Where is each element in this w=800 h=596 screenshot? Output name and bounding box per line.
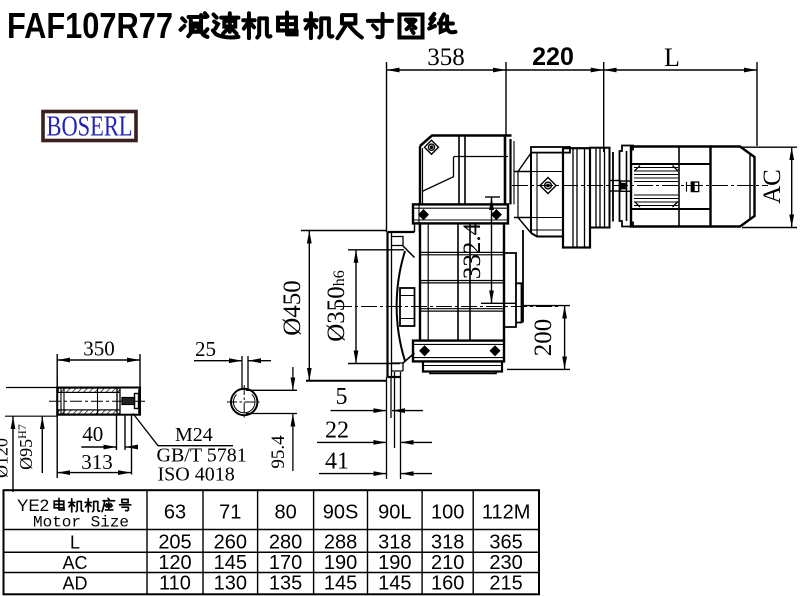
svg-text:63: 63 [164, 502, 186, 524]
svg-text:Ø450: Ø450 [279, 280, 306, 336]
svg-text:BOSERL: BOSERL [47, 111, 133, 143]
svg-text:41: 41 [325, 449, 349, 475]
svg-text:22: 22 [325, 418, 349, 444]
svg-text:358: 358 [427, 44, 465, 71]
svg-text:365: 365 [489, 532, 522, 554]
svg-text:130: 130 [214, 573, 247, 595]
svg-text:40: 40 [82, 422, 103, 446]
svg-text:318: 318 [378, 532, 411, 554]
svg-text:100: 100 [431, 502, 464, 524]
svg-text:M24: M24 [175, 424, 213, 446]
svg-text:Ø120: Ø120 [0, 438, 12, 478]
svg-text:145: 145 [324, 573, 357, 595]
svg-text:ISO 4018: ISO 4018 [158, 464, 235, 486]
svg-text:L: L [70, 533, 80, 553]
svg-text:120: 120 [158, 552, 191, 574]
svg-text:205: 205 [158, 532, 191, 554]
svg-text:145: 145 [214, 552, 247, 574]
svg-text:L: L [664, 43, 680, 72]
svg-text:190: 190 [378, 552, 411, 574]
svg-text:90S: 90S [323, 502, 359, 524]
svg-text:215: 215 [489, 573, 522, 595]
svg-text:200: 200 [530, 319, 557, 357]
svg-text:AC: AC [759, 169, 786, 204]
svg-text:280: 280 [269, 532, 302, 554]
svg-text:112M: 112M [482, 502, 531, 524]
svg-text:313: 313 [81, 450, 113, 474]
svg-text:90L: 90L [378, 502, 411, 524]
svg-text:25: 25 [195, 337, 216, 361]
svg-text:230: 230 [489, 552, 522, 574]
svg-text:145: 145 [378, 573, 411, 595]
svg-text:260: 260 [214, 532, 247, 554]
svg-text:5: 5 [336, 384, 348, 410]
svg-text:220: 220 [532, 43, 574, 71]
svg-text:110: 110 [159, 573, 191, 595]
svg-text:YE2: YE2 [17, 496, 49, 515]
svg-text:95.4: 95.4 [268, 435, 289, 469]
svg-text:FAF107R77: FAF107R77 [7, 5, 173, 46]
svg-text:190: 190 [324, 552, 357, 574]
svg-text:318: 318 [431, 532, 464, 554]
svg-text:71: 71 [219, 502, 241, 524]
svg-text:Motor Size: Motor Size [33, 514, 129, 532]
svg-text:135: 135 [269, 573, 302, 595]
svg-text:350: 350 [83, 337, 115, 361]
svg-text:80: 80 [274, 502, 296, 524]
svg-text:160: 160 [431, 573, 464, 595]
svg-text:AD: AD [62, 574, 87, 594]
svg-text:332.4: 332.4 [459, 222, 486, 279]
svg-text:AC: AC [62, 553, 87, 573]
svg-text:170: 170 [269, 552, 302, 574]
svg-text:210: 210 [431, 552, 464, 574]
svg-text:288: 288 [324, 532, 357, 554]
